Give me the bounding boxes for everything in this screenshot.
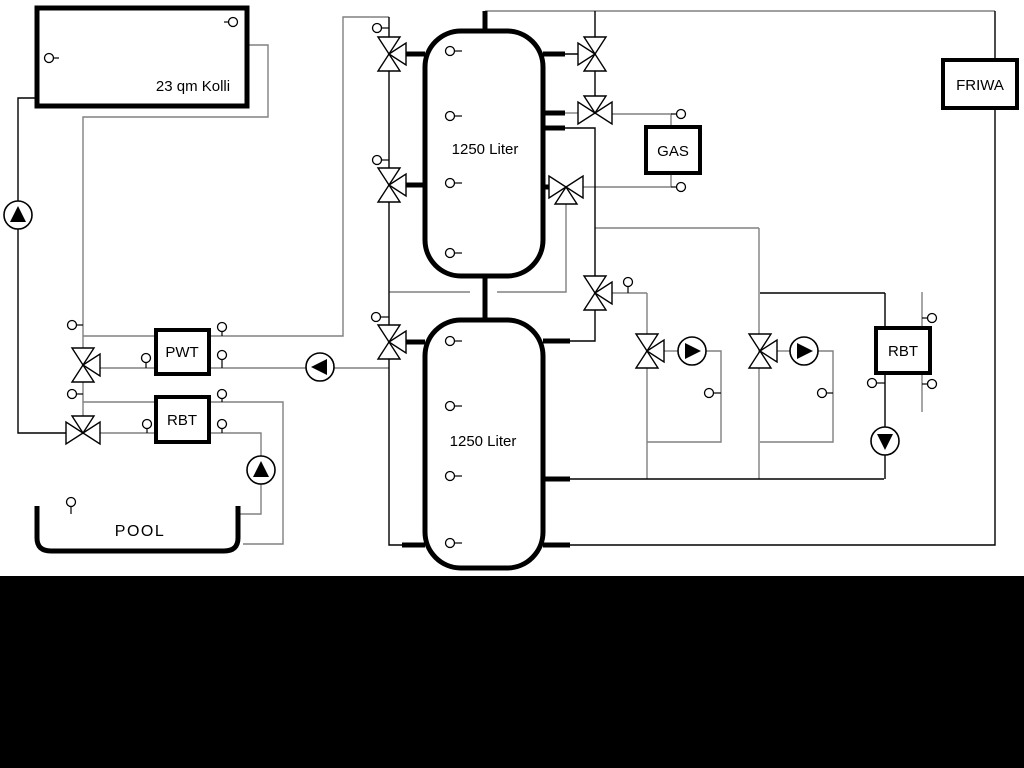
temperature-sensor-icon <box>218 420 227 434</box>
buffer-tank-bottom: 1250 Liter <box>425 320 543 568</box>
temperature-sensor-icon <box>671 183 686 192</box>
buffer-tank-top-label: 1250 Liter <box>452 141 519 158</box>
pool-label: POOL <box>115 523 165 540</box>
temperature-sensor-icon <box>922 314 937 323</box>
temperature-sensor-icon <box>922 380 937 389</box>
three-way-valve-icon <box>378 168 406 202</box>
schematic-canvas: 23 qm Kolli 1250 Liter 1250 Liter PWT RB… <box>0 0 1024 768</box>
sensor-bulb <box>446 249 455 258</box>
friwa-box: FRIWA <box>943 60 1017 108</box>
temperature-sensor-icon <box>218 390 227 403</box>
three-way-valve-icon <box>584 276 612 310</box>
sensor-bulb <box>677 110 686 119</box>
sensor-bulb <box>624 278 633 287</box>
pool-basin: POOL <box>37 506 238 551</box>
three-way-valve-icon <box>578 37 606 71</box>
sensor-bulb <box>373 156 382 165</box>
three-way-valve-icon <box>378 325 406 359</box>
rbt-right-box: RBT <box>876 328 930 373</box>
sensor-bulb <box>229 18 238 27</box>
sensor-bulb <box>868 379 877 388</box>
pwt-label: PWT <box>165 344 198 361</box>
sensor-bulb <box>143 420 152 429</box>
sensor-bulb <box>372 313 381 322</box>
three-way-valve-icon <box>378 37 406 71</box>
pump-icon <box>4 201 32 229</box>
pipe-segment <box>570 11 995 545</box>
three-way-valve-icon <box>549 176 583 204</box>
temperature-sensor-icon <box>142 354 151 369</box>
rbt-left-box: RBT <box>156 397 209 442</box>
pipe-segment <box>18 98 83 433</box>
sensor-bulb <box>218 390 227 399</box>
temperature-sensor-icon <box>373 24 390 33</box>
sensor-bulb <box>373 24 382 33</box>
pwt-heat-exchanger-box: PWT <box>156 330 209 374</box>
sensor-bulb <box>928 380 937 389</box>
three-way-valve-icon <box>578 96 612 124</box>
footer-black-band <box>0 576 1024 768</box>
buffer-tank-top: 1250 Liter <box>425 31 543 276</box>
sensor-bulb <box>218 351 227 360</box>
sensor-bulb <box>446 539 455 548</box>
temperature-sensor-icon <box>671 110 686 119</box>
rbt-left-label: RBT <box>167 412 197 429</box>
heating-schematic: 23 qm Kolli 1250 Liter 1250 Liter PWT RB… <box>0 0 1024 768</box>
temperature-sensor-icon <box>143 420 152 434</box>
sensor-bulb <box>705 389 714 398</box>
three-way-valve-icon <box>636 334 664 368</box>
three-way-valve-icon <box>72 348 100 382</box>
temperature-sensor-icon <box>218 323 227 337</box>
gas-boiler-box: GAS <box>646 127 700 173</box>
temperature-sensor-icon <box>68 321 84 330</box>
sensor-bulb <box>446 402 455 411</box>
sensor-bulb <box>142 354 151 363</box>
sensor-bulb <box>446 47 455 56</box>
pump-icon <box>871 427 899 455</box>
pipe-segment <box>583 173 671 187</box>
temperature-sensor-icon <box>372 313 390 322</box>
pump-icon <box>247 456 275 484</box>
solar-collector-box: 23 qm Kolli <box>37 8 247 106</box>
three-way-valve-icon <box>66 416 100 444</box>
sensor-bulb <box>45 54 54 63</box>
gas-label: GAS <box>657 143 689 160</box>
temperature-sensor-icon <box>818 389 834 398</box>
buffer-tank-bottom-label: 1250 Liter <box>450 433 517 450</box>
sensor-bulb <box>928 314 937 323</box>
pump-icon <box>790 337 818 365</box>
sensor-bulb <box>68 321 77 330</box>
sensor-bulb <box>818 389 827 398</box>
sensor-bulb <box>446 472 455 481</box>
temperature-sensor-icon <box>373 156 390 165</box>
three-way-valve-icon <box>749 334 777 368</box>
pipe-segment <box>389 17 403 545</box>
solar-collector-label: 23 qm Kolli <box>156 78 230 95</box>
sensor-bulb <box>446 179 455 188</box>
pump-icon <box>678 337 706 365</box>
temperature-sensor-icon <box>67 498 76 515</box>
temperature-sensor-icon <box>624 278 633 294</box>
sensor-bulb <box>68 390 77 399</box>
sensor-bulb <box>218 323 227 332</box>
sensor-bulb <box>446 112 455 121</box>
rbt-right-label: RBT <box>888 343 918 360</box>
temperature-sensor-icon <box>868 379 886 388</box>
pump-icon <box>306 353 334 381</box>
sensor-bulb <box>677 183 686 192</box>
temperature-sensor-icon <box>68 390 84 399</box>
sensor-bulb <box>218 420 227 429</box>
temperature-sensor-icon <box>705 389 722 398</box>
temperature-sensor-icon <box>218 351 227 369</box>
sensor-bulb <box>67 498 76 507</box>
sensor-bulb <box>446 337 455 346</box>
friwa-label: FRIWA <box>956 77 1004 94</box>
